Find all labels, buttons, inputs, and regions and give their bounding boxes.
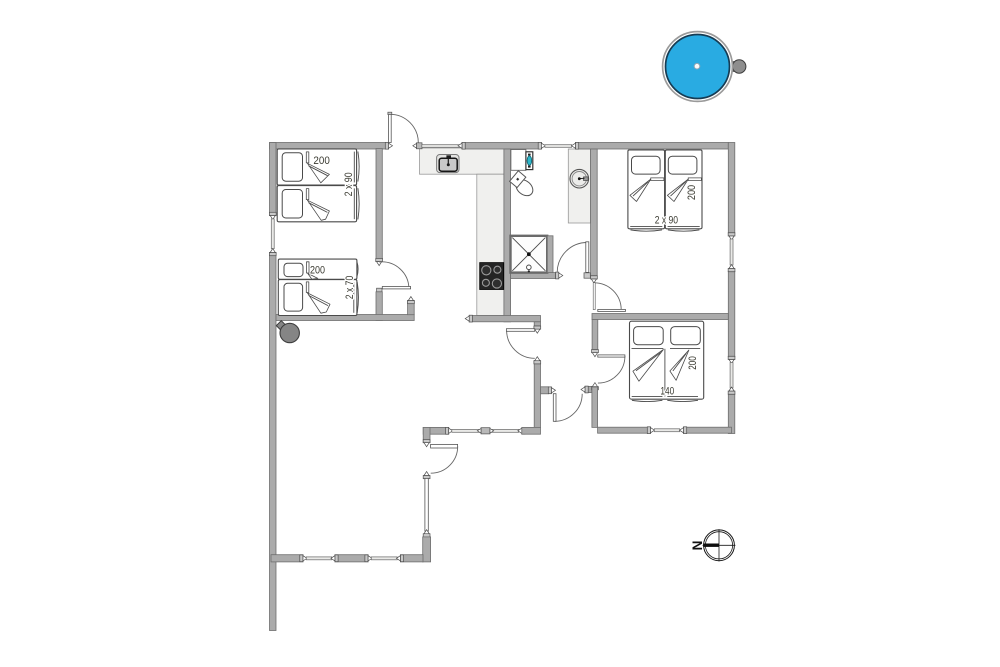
svg-text:200: 200: [313, 155, 329, 167]
svg-text:2 x 90: 2 x 90: [655, 215, 678, 227]
svg-text:200: 200: [686, 185, 698, 200]
svg-text:2 x 70: 2 x 70: [344, 276, 356, 300]
svg-text:2 x 90: 2 x 90: [343, 172, 355, 196]
svg-text:200: 200: [310, 265, 325, 277]
svg-text:140: 140: [660, 386, 674, 398]
svg-text:200: 200: [687, 356, 699, 370]
svg-text:N: N: [689, 541, 704, 551]
